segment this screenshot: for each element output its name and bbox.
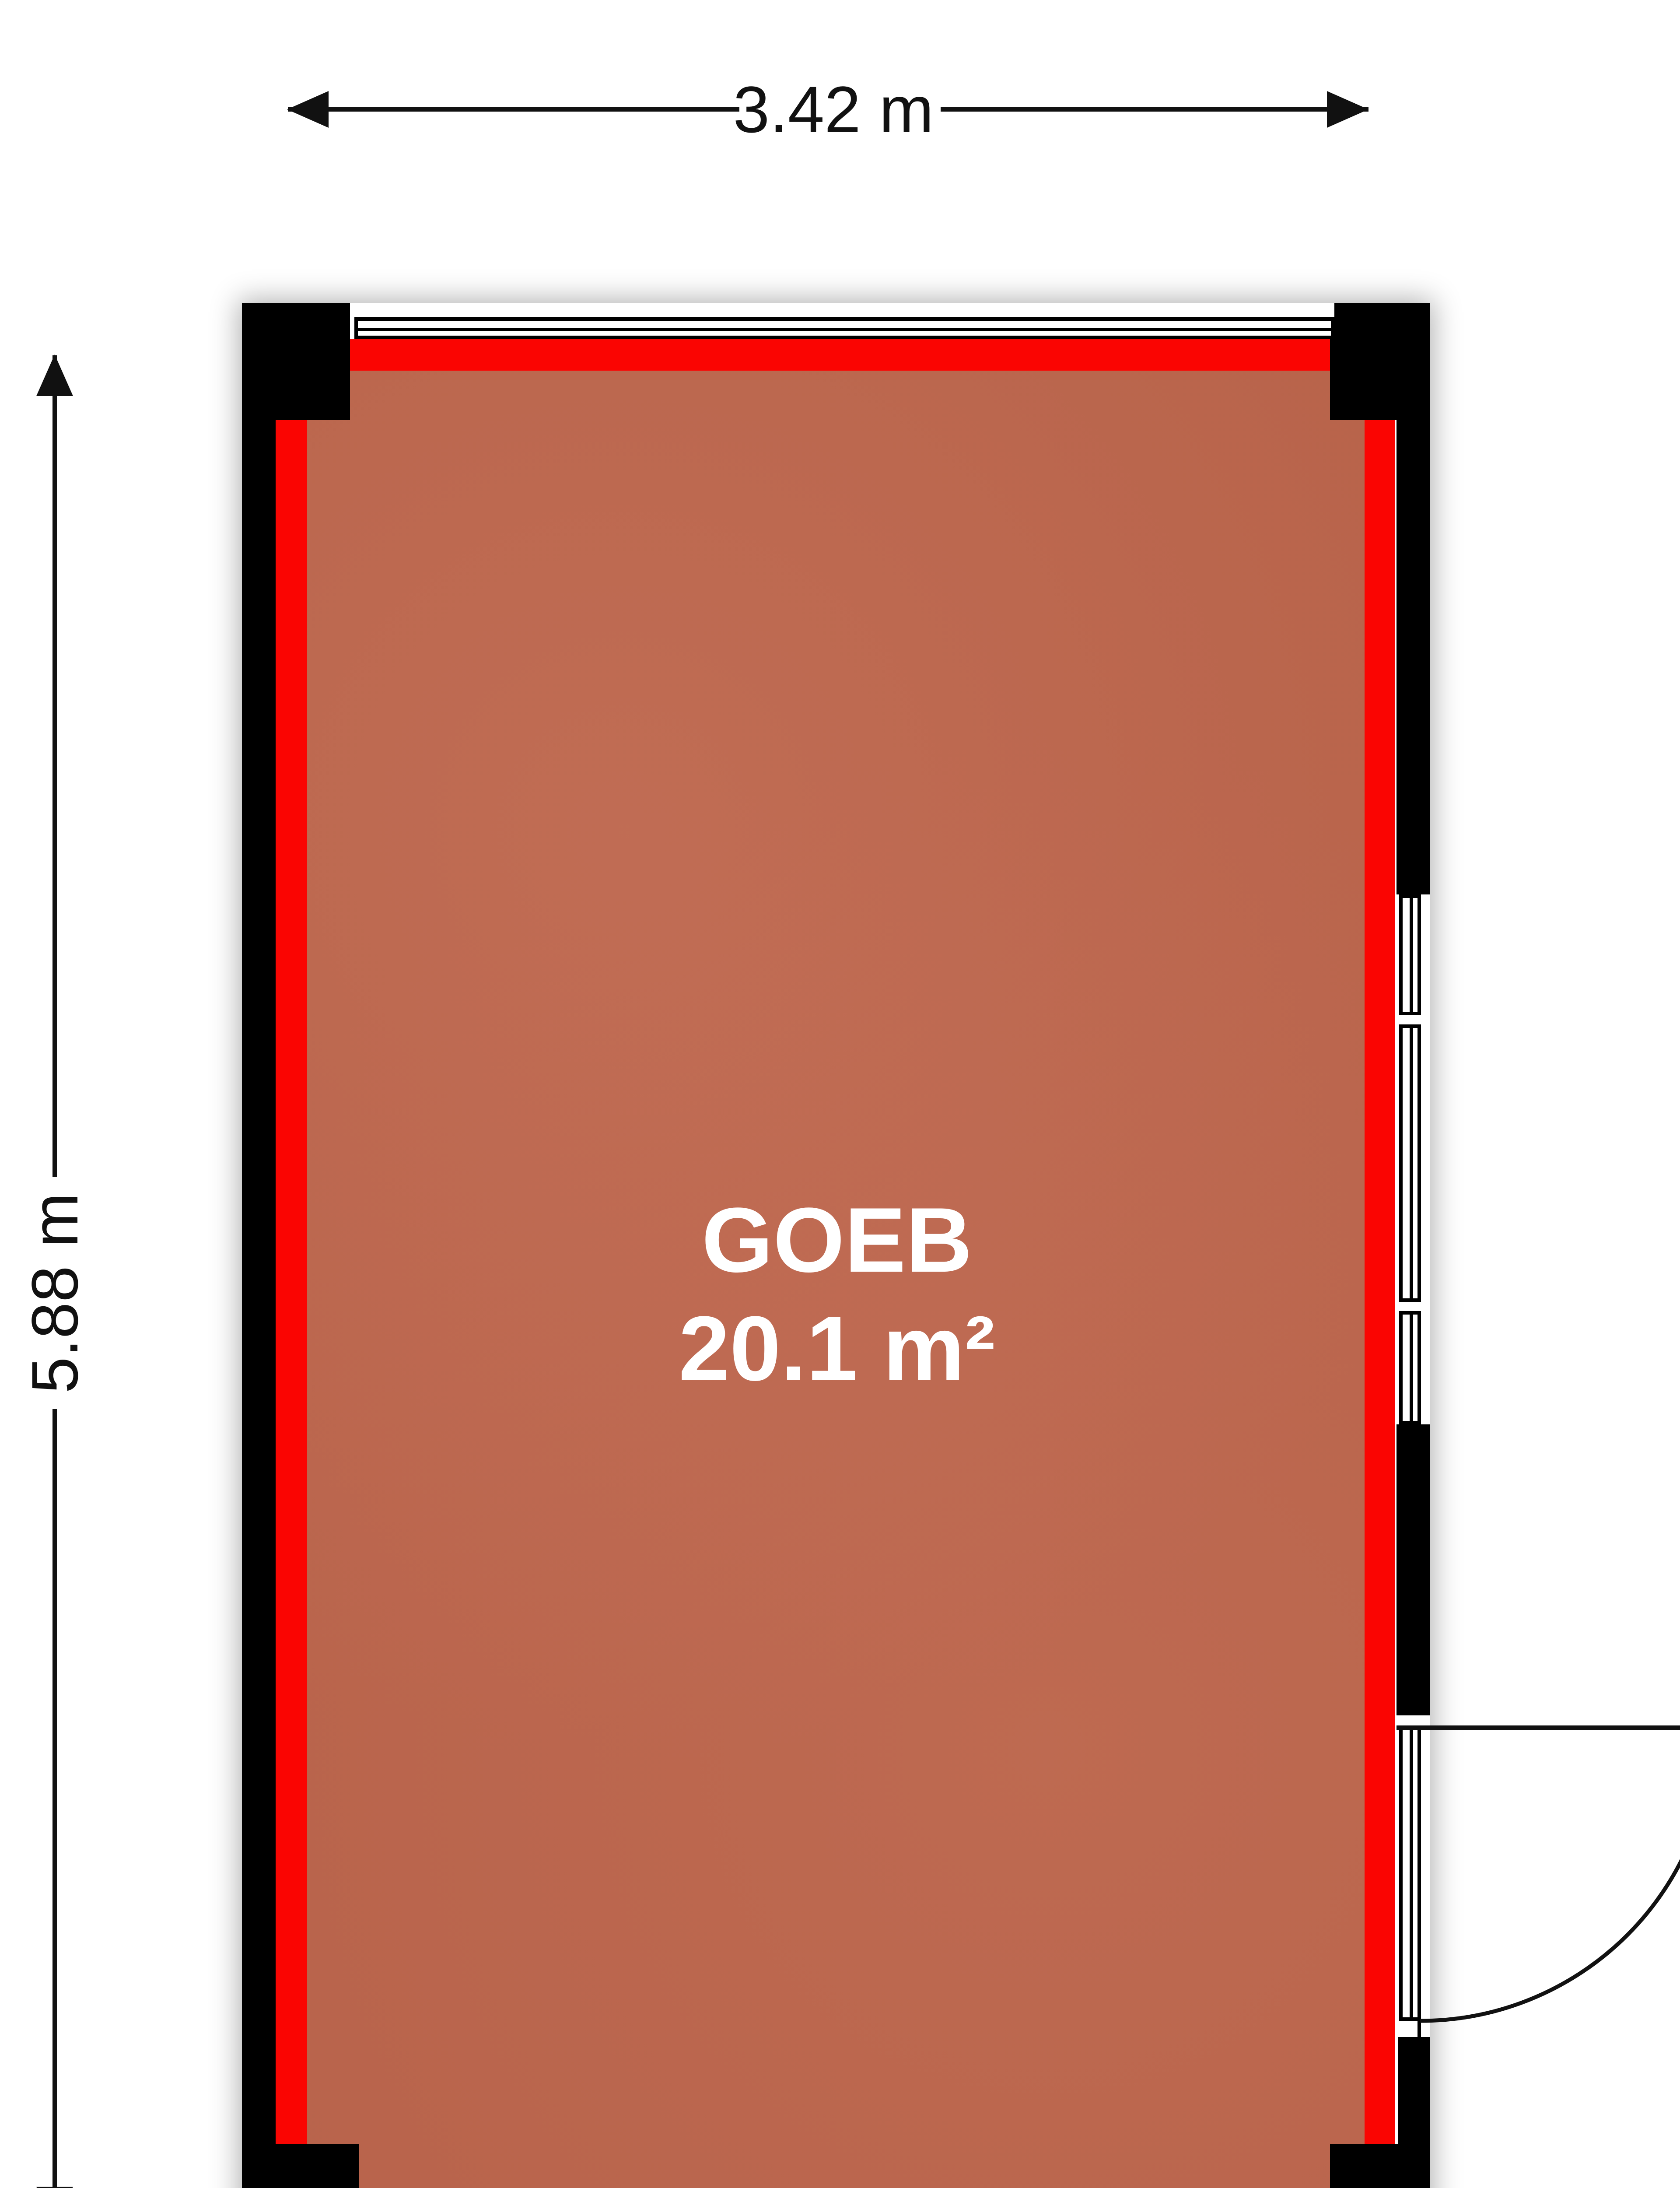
door-frame-line <box>1417 1728 1421 2037</box>
mullion-cap <box>1399 894 1421 898</box>
glazing-line <box>1410 1024 1413 1302</box>
wall-bottom-left-corner <box>242 2144 359 2188</box>
glazing-line <box>354 328 1334 331</box>
window-right-middle <box>1395 1024 1430 1302</box>
glazing-line <box>1417 1024 1421 1302</box>
glazing-line <box>1417 894 1421 1015</box>
window-frame-line <box>354 336 1334 339</box>
wall-right-middle <box>1396 1424 1430 1715</box>
height-dimension-line <box>52 1409 57 2188</box>
wall-right-lower <box>1398 2037 1430 2188</box>
room-name: GOEB <box>679 1186 995 1294</box>
width-dimension-line <box>941 107 1368 112</box>
mullion-cap <box>1399 1421 1421 1424</box>
glazing-line <box>354 317 1334 321</box>
door-jamb-line <box>1410 1728 1413 2021</box>
window-frame-line <box>1331 317 1334 339</box>
glazing-line <box>1410 1311 1413 1424</box>
room-label: GOEB 20.1 m² <box>679 1186 995 1403</box>
width-dimension-line <box>288 107 739 112</box>
room-area-label: 20.1 m² <box>679 1294 995 1403</box>
mullion-cap <box>1399 1298 1421 1302</box>
floorplan-canvas: 3.42 m 5.88 m <box>0 0 1680 2188</box>
mullion-cap <box>1399 1012 1421 1015</box>
window-right-lower <box>1395 1311 1430 1424</box>
mullion-cap <box>1399 1024 1421 1028</box>
window-right-upper <box>1395 894 1430 1015</box>
window-frame-line <box>1399 1311 1403 1424</box>
height-dimension-label: 5.88 m <box>22 1193 87 1394</box>
height-dimension-line <box>52 355 57 1177</box>
width-dimension-label: 3.42 m <box>733 77 934 142</box>
wall-top-left-corner <box>242 303 350 420</box>
mullion-cap <box>1399 1311 1421 1315</box>
door-swing-arc <box>1420 1728 1680 2021</box>
arrow-right-icon <box>1327 91 1368 128</box>
door-jamb-line <box>1399 1728 1403 2021</box>
wall-right-upper <box>1396 303 1430 894</box>
glazing-line <box>1410 894 1413 1015</box>
window-frame-line <box>1399 894 1403 1015</box>
door-opening <box>1395 1715 1430 2037</box>
floorplan: GOEB 20.1 m² <box>242 303 1430 2188</box>
window-top <box>354 303 1334 339</box>
wall-left <box>242 303 276 2188</box>
door-frame-line <box>1399 2017 1421 2021</box>
glazing-line <box>1417 1311 1421 1424</box>
window-frame-line <box>1399 1024 1403 1302</box>
